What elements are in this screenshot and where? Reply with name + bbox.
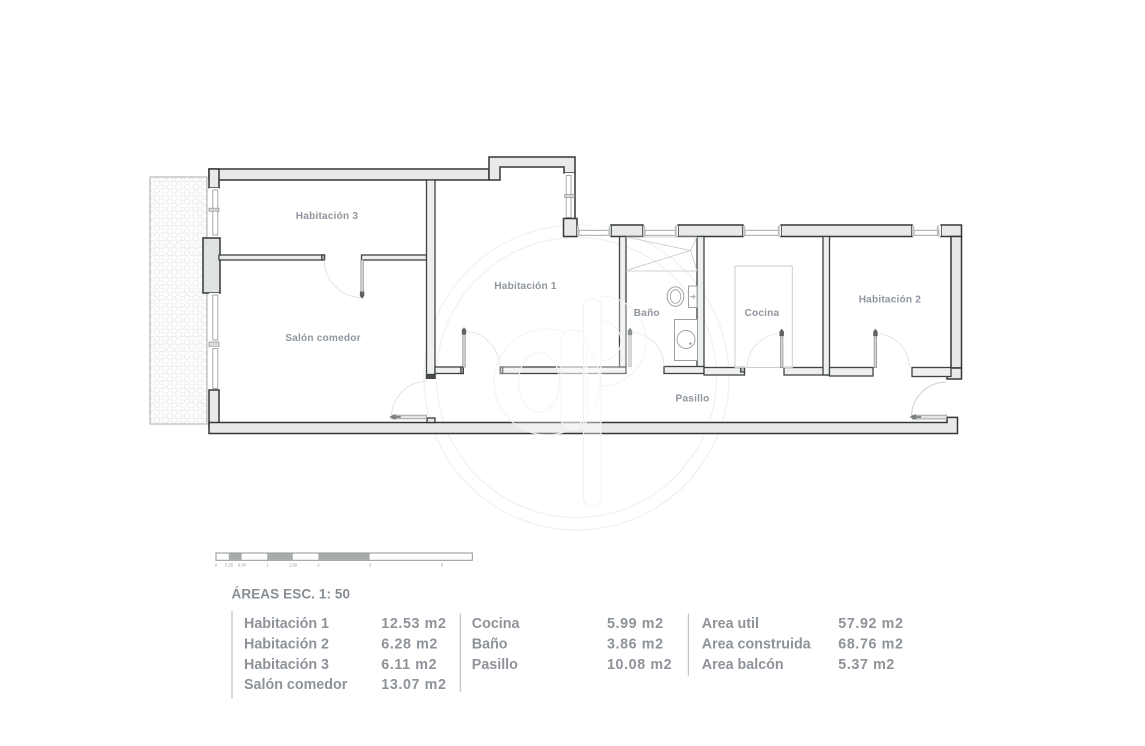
svg-text:Baño: Baño [634, 308, 660, 319]
svg-text:13.07 m2: 13.07 m2 [381, 677, 446, 693]
svg-text:3.86 m2: 3.86 m2 [607, 637, 664, 653]
svg-text:Area balcón: Area balcón [702, 657, 784, 673]
svg-text:0.50: 0.50 [238, 563, 247, 568]
svg-text:68.76 m2: 68.76 m2 [838, 637, 903, 653]
svg-text:Salón comedor: Salón comedor [285, 333, 361, 344]
svg-text:3: 3 [369, 563, 372, 568]
svg-text:Cocina: Cocina [744, 308, 779, 319]
svg-text:Habitación 2: Habitación 2 [244, 637, 329, 653]
svg-text:6.28 m2: 6.28 m2 [381, 637, 438, 653]
svg-text:Habitación 1: Habitación 1 [494, 281, 557, 292]
svg-text:0.25: 0.25 [225, 563, 234, 568]
svg-text:Pasillo: Pasillo [472, 657, 518, 673]
svg-text:Salón comedor: Salón comedor [244, 677, 348, 693]
svg-text:5: 5 [441, 563, 444, 568]
svg-text:Habitación 1: Habitación 1 [244, 616, 329, 632]
svg-text:5.99 m2: 5.99 m2 [607, 616, 664, 632]
svg-text:Area construida: Area construida [702, 637, 812, 653]
svg-text:Habitación 3: Habitación 3 [244, 657, 329, 673]
svg-text:Habitación 2: Habitación 2 [859, 295, 922, 306]
svg-text:57.92 m2: 57.92 m2 [838, 616, 903, 632]
svg-text:1: 1 [266, 563, 269, 568]
svg-text:5.37 m2: 5.37 m2 [838, 657, 895, 673]
svg-text:Pasillo: Pasillo [676, 394, 710, 405]
svg-text:12.53 m2: 12.53 m2 [381, 616, 446, 632]
svg-text:1.50: 1.50 [289, 563, 298, 568]
svg-text:Cocina: Cocina [472, 616, 521, 632]
svg-text:2: 2 [317, 563, 320, 568]
svg-text:Area util: Area util [702, 616, 759, 632]
svg-text:ÁREAS ESC. 1: 50: ÁREAS ESC. 1: 50 [232, 587, 351, 602]
svg-text:Habitación 3: Habitación 3 [296, 211, 359, 222]
svg-text:6.11 m2: 6.11 m2 [381, 657, 437, 673]
svg-text:0: 0 [215, 563, 218, 568]
svg-text:Baño: Baño [472, 637, 508, 653]
svg-text:10.08 m2: 10.08 m2 [607, 657, 672, 673]
